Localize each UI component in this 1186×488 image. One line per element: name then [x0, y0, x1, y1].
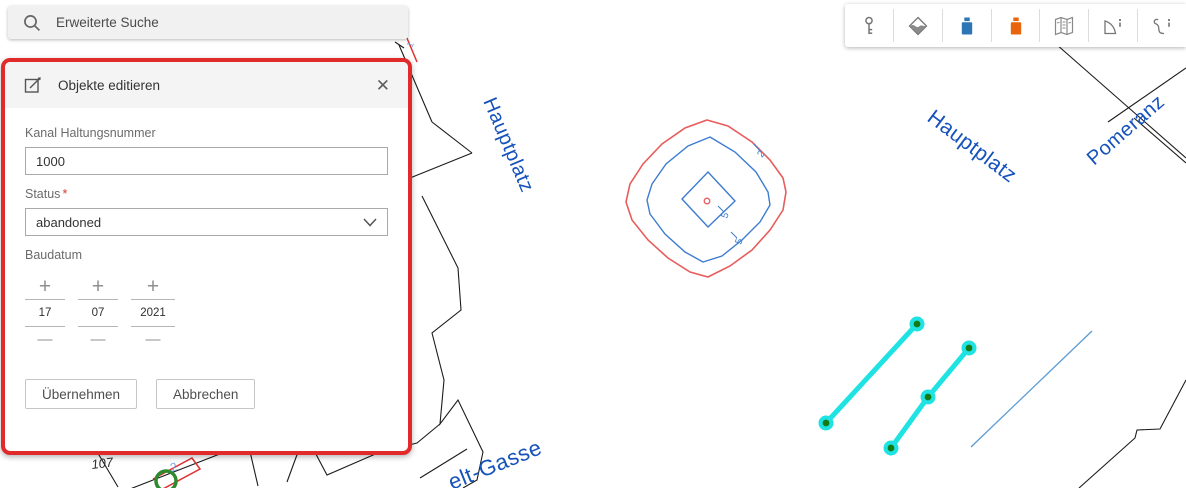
map-toolbar: [845, 4, 1186, 47]
search-label: Erweiterte Suche: [56, 15, 159, 30]
search-icon: [22, 13, 42, 33]
edit-lines[interactable]: [826, 324, 969, 448]
key-icon: [857, 14, 881, 38]
parcel-number-label: 107: [91, 454, 115, 472]
chevron-down-icon: [363, 218, 377, 227]
basemap-tool-button[interactable]: [894, 4, 942, 47]
edit-panel: Objekte editieren ✕ Kanal Haltungsnummer…: [1, 58, 412, 455]
polygon-info-tool-button[interactable]: [1089, 4, 1137, 47]
map-sheet-icon: [1052, 14, 1076, 38]
map-sheet-tool-button[interactable]: [1040, 4, 1088, 47]
edit-panel-body: Kanal Haltungsnummer Status* abandoned B…: [5, 108, 408, 451]
status-label-text: Status: [25, 187, 60, 201]
street-label-hauptplatz-left: Hauptplatz: [478, 94, 538, 195]
street-labels: Hauptplatz Hauptplatz Pomeranz elt-Gasse: [445, 91, 1170, 488]
cancel-button[interactable]: Abbrechen: [156, 379, 255, 409]
month-increment-button[interactable]: +: [78, 274, 118, 299]
year-increment-button[interactable]: +: [131, 274, 175, 299]
contour-rings: [626, 120, 786, 277]
street-label-pomeranz: Pomeranz: [1083, 91, 1169, 170]
map-view: Hauptplatz Hauptplatz Pomeranz elt-Gasse…: [0, 0, 1186, 488]
line-info-tool-button[interactable]: [1138, 4, 1186, 47]
day-decrement-button[interactable]: —: [25, 327, 65, 352]
kanal-field-label: Kanal Haltungsnummer: [25, 126, 388, 140]
year-value: 2021: [131, 300, 175, 326]
year-decrement-button[interactable]: —: [131, 327, 175, 352]
street-label-gasse: elt-Gasse: [445, 434, 546, 488]
point-symbol-orange-icon: [1004, 14, 1028, 38]
thin-blue-line: [971, 331, 1092, 447]
status-field-label: Status*: [25, 187, 388, 201]
month-stepper: + 07 —: [78, 274, 118, 352]
contour-label-5a: 5: [719, 211, 731, 220]
point-symbol-blue-button[interactable]: [943, 4, 991, 47]
point-symbol-blue-icon: [955, 14, 979, 38]
dimension-label-1: 1: [405, 40, 416, 49]
edit-vertices[interactable]: [819, 317, 977, 456]
date-stepper: + 17 — + 07 — + 2021: [25, 274, 388, 352]
day-increment-button[interactable]: +: [25, 274, 65, 299]
year-stepper: + 2021 —: [131, 274, 175, 352]
baudatum-field-label: Baudatum: [25, 248, 388, 262]
search-bar[interactable]: Erweiterte Suche: [8, 6, 408, 39]
status-select-value: abandoned: [36, 215, 363, 230]
status-select[interactable]: abandoned: [25, 208, 388, 236]
day-value: 17: [25, 300, 65, 326]
month-value: 07: [78, 300, 118, 326]
edit-icon: [23, 75, 43, 95]
panel-title: Objekte editieren: [58, 78, 160, 93]
point-symbol-orange-button[interactable]: [992, 4, 1040, 47]
line-info-icon: [1149, 14, 1175, 38]
month-decrement-button[interactable]: —: [78, 327, 118, 352]
kanal-input[interactable]: [25, 147, 388, 175]
panel-buttons: Übernehmen Abbrechen: [25, 379, 388, 409]
day-stepper: + 17 —: [25, 274, 65, 352]
apply-button[interactable]: Übernehmen: [25, 379, 137, 409]
contour-label-2: 2: [755, 148, 767, 159]
polygon-info-icon: [1100, 14, 1126, 38]
close-icon[interactable]: ✕: [376, 77, 390, 94]
street-label-hauptplatz-right: Hauptplatz: [923, 106, 1021, 188]
key-tool-button[interactable]: [845, 4, 893, 47]
required-asterisk: *: [62, 187, 67, 201]
edit-panel-header: Objekte editieren ✕: [5, 62, 408, 108]
basemap-icon: [906, 14, 930, 38]
